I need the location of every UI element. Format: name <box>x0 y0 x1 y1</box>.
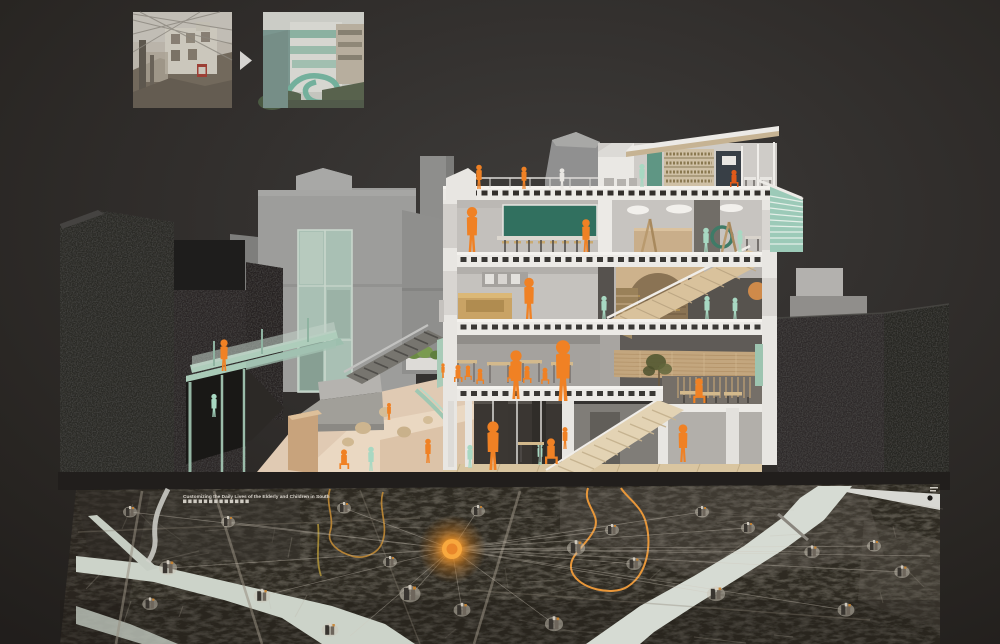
svg-text:Customizing the Daily Lives of: Customizing the Daily Lives of the Elder… <box>183 494 330 500</box>
